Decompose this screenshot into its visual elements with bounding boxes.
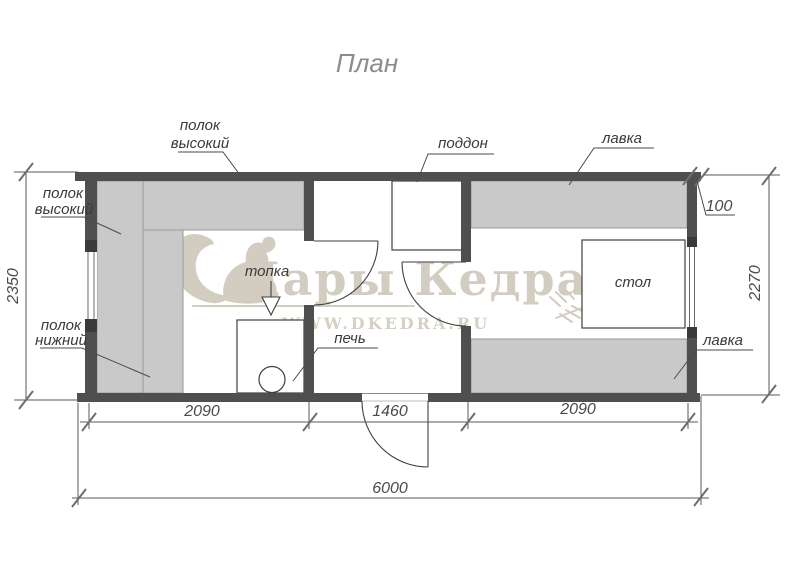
dim-wall-thickness: 100 (706, 198, 733, 215)
dim-left-room: 2090 (183, 403, 220, 420)
dim-depth-right: 2270 (747, 265, 764, 302)
label-shelf-high-left: полок (43, 185, 84, 202)
page-title: План (336, 48, 398, 78)
shelf-high-top (143, 181, 304, 230)
label-furnace: топка (245, 263, 289, 280)
label-shelf-high-top: полок (180, 117, 221, 134)
window-left-jamb-bottom (85, 319, 97, 332)
svg-text:нижний: нижний (35, 332, 88, 349)
label-stove: печь (334, 330, 366, 347)
label-bench-bottom: лавка (702, 332, 743, 349)
dim-middle-room: 1460 (372, 403, 408, 420)
dim-right-room: 2090 (559, 401, 596, 418)
wall-top (75, 172, 701, 181)
floor-plan-drawing: Дары Кедра WWW.DKEDRA.RU (0, 0, 800, 565)
shelf-low (143, 230, 183, 393)
wall-bottom-left (77, 393, 362, 402)
wall-right (687, 181, 697, 393)
label-shower-tray: поддон (438, 135, 488, 152)
dim-depth-left: 2350 (5, 268, 22, 305)
label-bench-top: лавка (601, 130, 642, 147)
svg-text:высокий: высокий (171, 135, 230, 152)
svg-text:высокий: высокий (35, 201, 94, 218)
bench-bottom (471, 339, 687, 393)
watermark-brand: Дары Кедра (240, 252, 589, 306)
window-left-jamb-top (85, 240, 97, 252)
window-right-jamb-bottom (687, 327, 697, 338)
shelf-high-left (97, 181, 143, 393)
watermark: Дары Кедра WWW.DKEDRA.RU (172, 234, 600, 333)
bench-top (471, 181, 687, 228)
label-table: стол (615, 274, 652, 291)
floor-plan-canvas: Дары Кедра WWW.DKEDRA.RU (0, 0, 800, 565)
dim-total-length: 6000 (372, 480, 408, 497)
window-right-jamb-top (687, 237, 697, 247)
stove-circle (259, 367, 285, 393)
shower-tray (392, 181, 462, 250)
